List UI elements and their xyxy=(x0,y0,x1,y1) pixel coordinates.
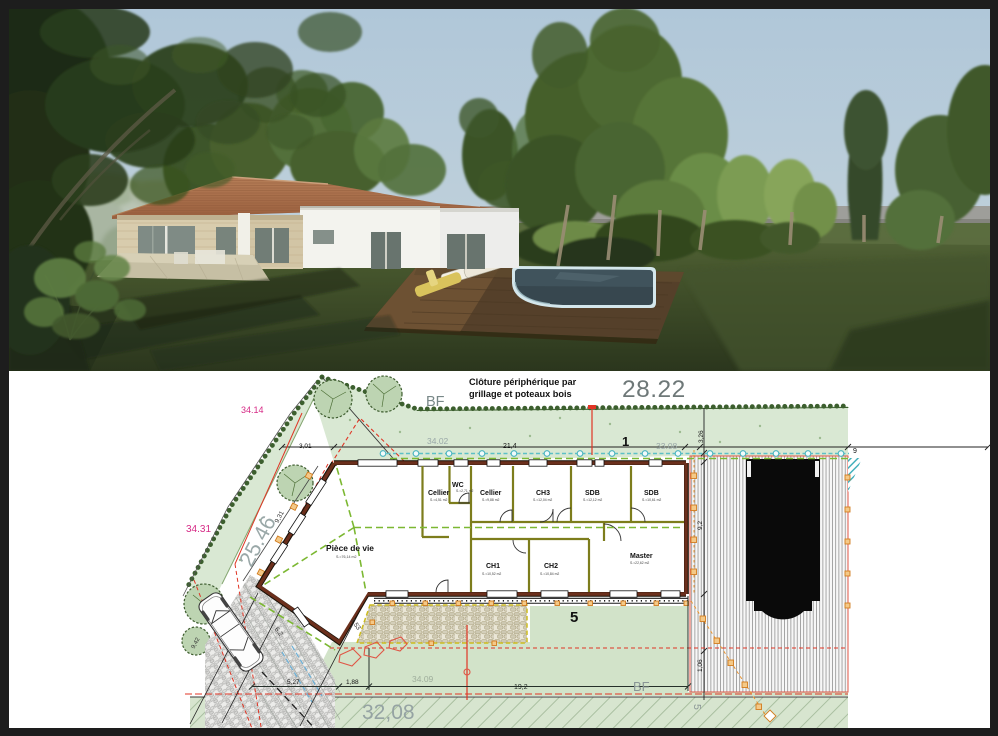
svg-text:SDB: SDB xyxy=(585,490,600,497)
svg-text:CH2: CH2 xyxy=(544,563,558,570)
svg-text:28.22: 28.22 xyxy=(622,376,686,403)
svg-text:S.=12,04 m2: S.=12,04 m2 xyxy=(533,498,552,502)
svg-text:S.=4,51 m2: S.=4,51 m2 xyxy=(430,498,448,502)
svg-text:3,26: 3,26 xyxy=(698,430,705,443)
svg-text:5: 5 xyxy=(691,704,703,710)
svg-text:5: 5 xyxy=(570,609,578,626)
svg-text:Master: Master xyxy=(630,553,653,560)
svg-text:33.08: 33.08 xyxy=(656,441,678,451)
svg-text:Cellier: Cellier xyxy=(480,490,502,497)
svg-text:1: 1 xyxy=(622,434,629,449)
svg-text:BF: BF xyxy=(426,394,445,410)
svg-text:S.=2,71 m2: S.=2,71 m2 xyxy=(456,489,474,493)
svg-text:CH3: CH3 xyxy=(536,490,550,497)
svg-text:CH1: CH1 xyxy=(486,563,500,570)
svg-text:34.14: 34.14 xyxy=(241,405,264,415)
svg-text:Clôture périphérique par: Clôture périphérique par xyxy=(469,377,577,387)
svg-text:S.=9,88 m2: S.=9,88 m2 xyxy=(482,498,500,502)
svg-text:BF: BF xyxy=(633,679,650,694)
svg-text:S.=22,62 m2: S.=22,62 m2 xyxy=(630,561,649,565)
svg-text:Pièce de vie: Pièce de vie xyxy=(326,543,374,553)
svg-text:34.31: 34.31 xyxy=(186,524,211,535)
svg-text:9,2: 9,2 xyxy=(697,521,704,530)
svg-text:21,4: 21,4 xyxy=(503,443,517,450)
svg-text:S.=76,14 m2: S.=76,14 m2 xyxy=(336,555,356,559)
svg-text:3,01: 3,01 xyxy=(299,443,312,450)
svg-text:9: 9 xyxy=(853,448,857,455)
svg-text:5,27: 5,27 xyxy=(287,679,300,686)
svg-text:SDB: SDB xyxy=(644,490,659,497)
svg-text:S.=10,61 m2: S.=10,61 m2 xyxy=(642,498,661,502)
svg-text:1,88: 1,88 xyxy=(346,679,359,686)
svg-text:32,08: 32,08 xyxy=(362,701,415,724)
svg-text:WC: WC xyxy=(452,482,464,489)
svg-text:S.=10,52 m2: S.=10,52 m2 xyxy=(482,572,501,576)
svg-text:S.=12,12 m2: S.=12,12 m2 xyxy=(583,498,602,502)
svg-text:grillage et poteaux bois: grillage et poteaux bois xyxy=(469,389,572,399)
svg-text:S.=10,84 m2: S.=10,84 m2 xyxy=(540,572,559,576)
svg-text:Cellier: Cellier xyxy=(428,490,450,497)
svg-text:1,06: 1,06 xyxy=(697,659,704,672)
svg-text:34.02: 34.02 xyxy=(427,436,449,446)
svg-text:34.09: 34.09 xyxy=(412,674,434,684)
svg-text:19,2: 19,2 xyxy=(514,684,528,691)
